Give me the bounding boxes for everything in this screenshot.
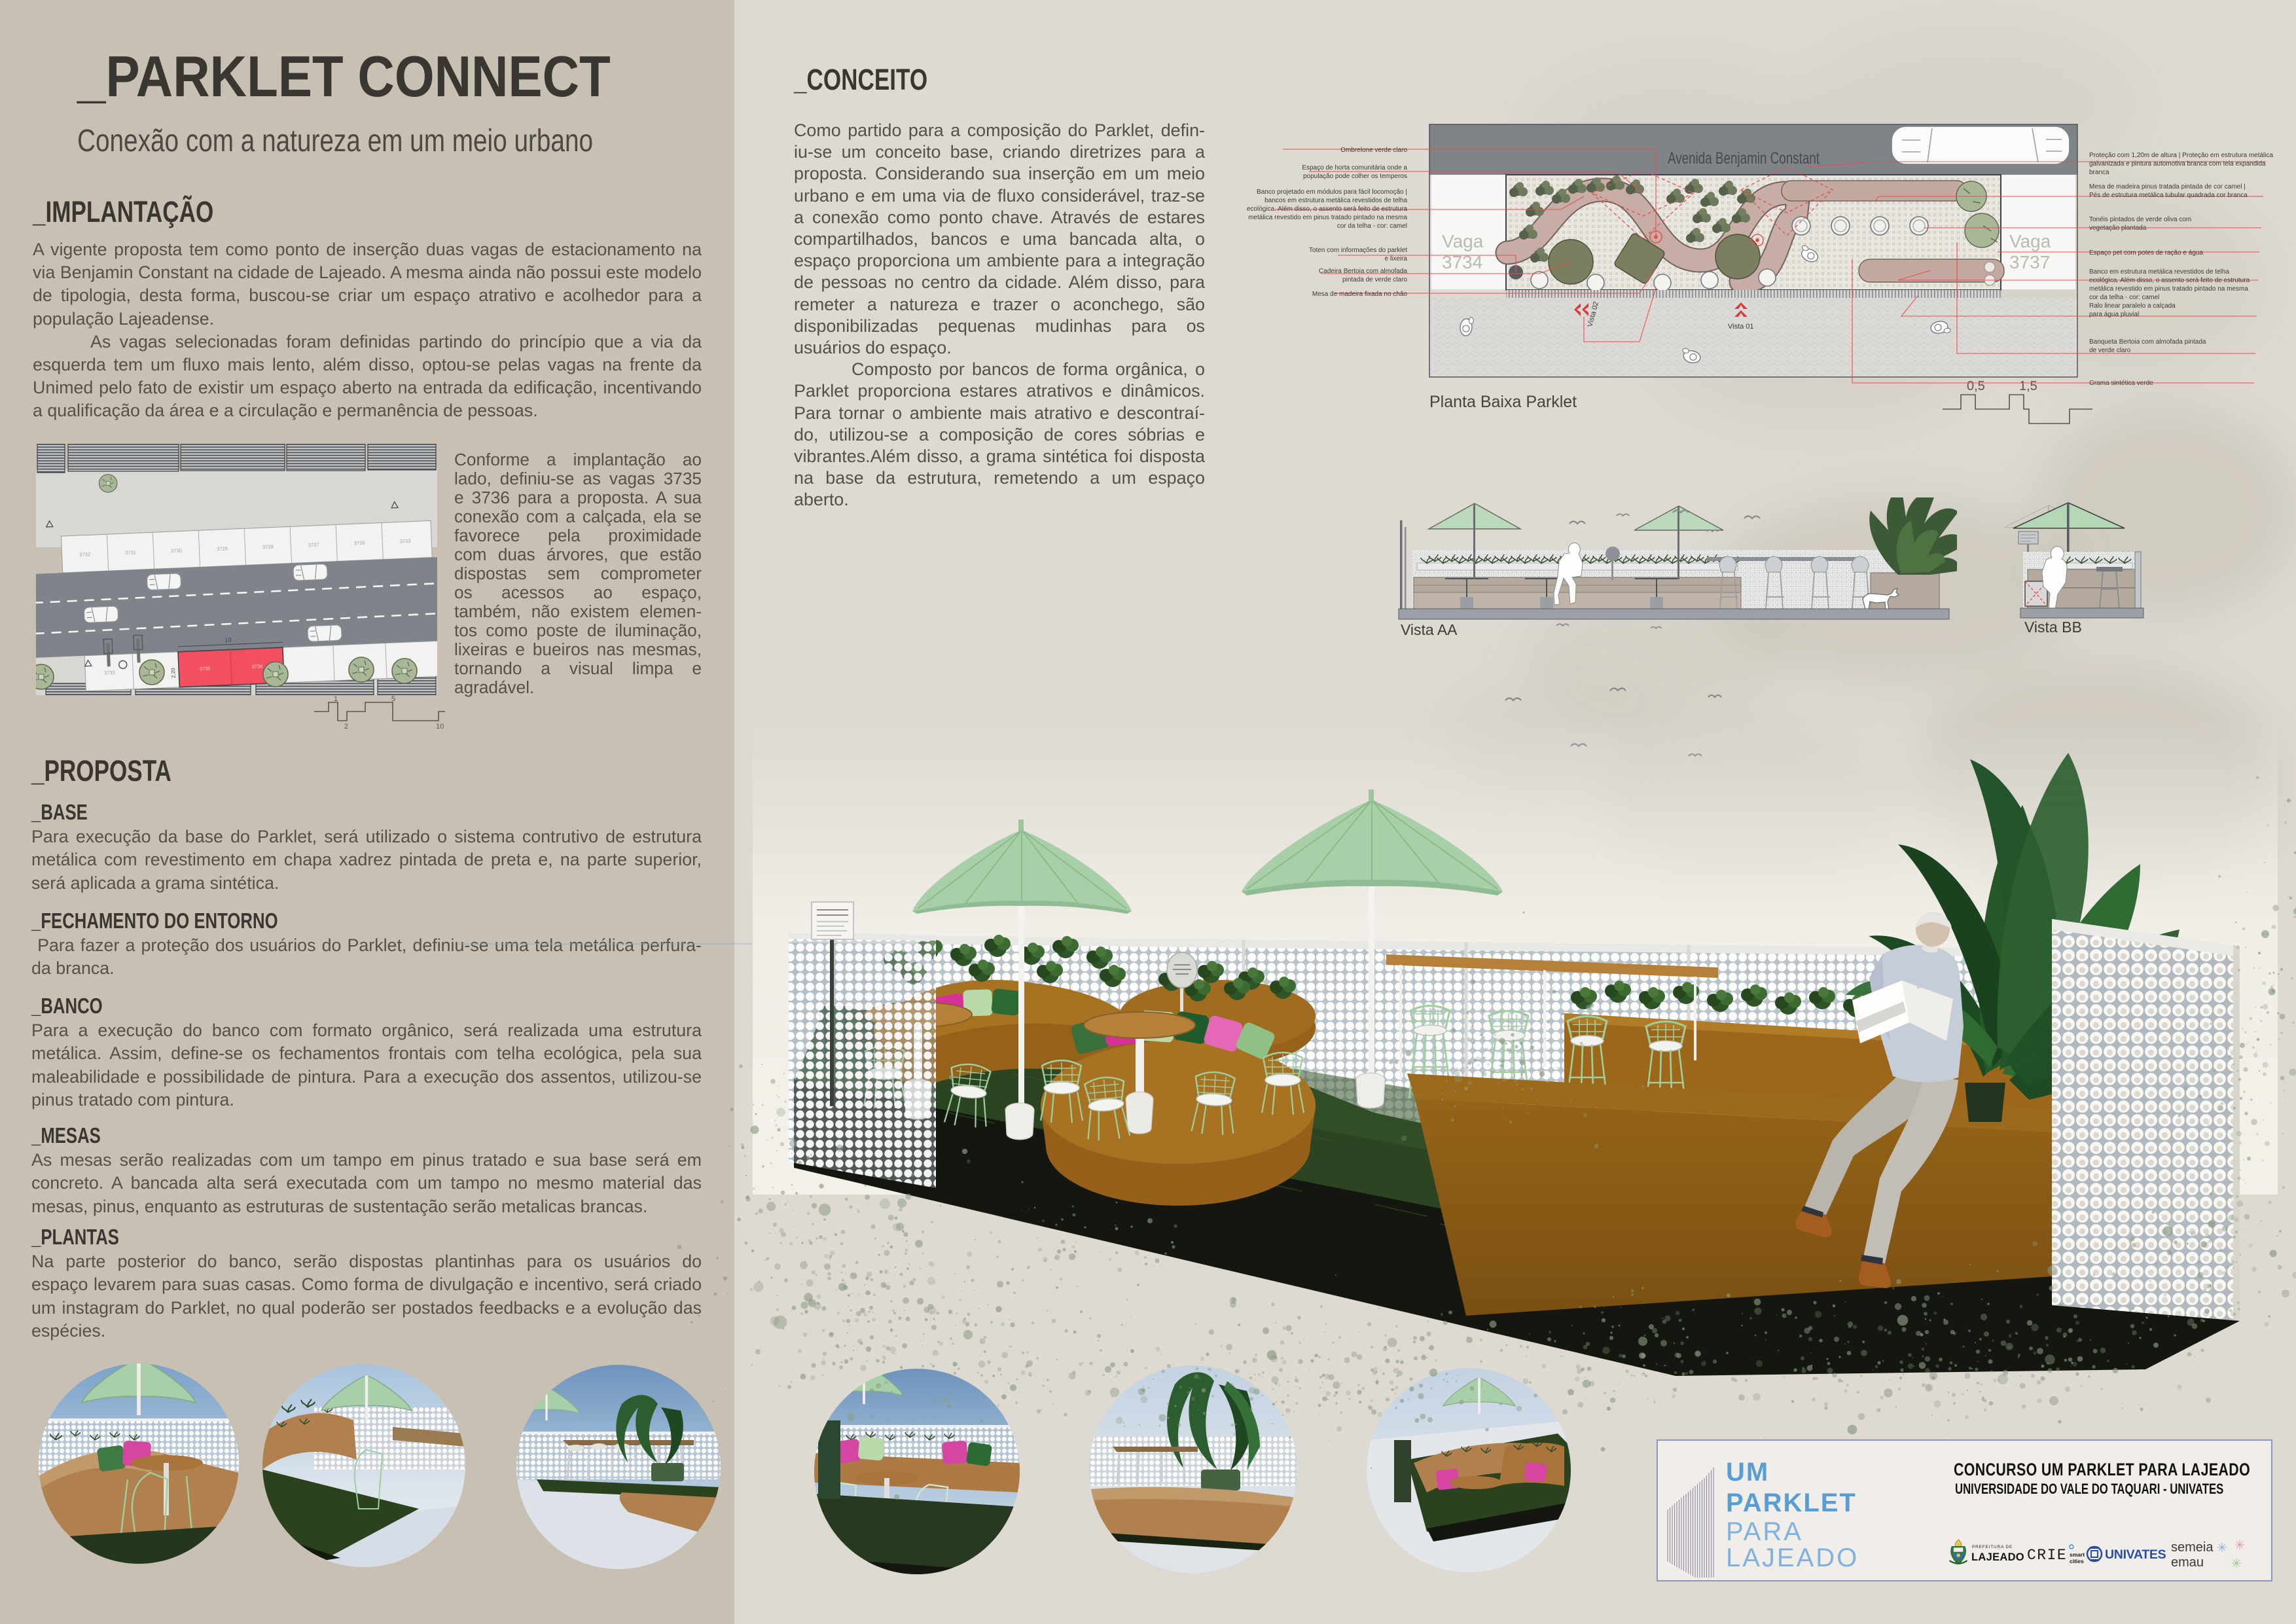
svg-text:cities: cities: [2070, 1558, 2084, 1564]
svg-text:emau: emau: [2171, 1555, 2204, 1570]
svg-text:semeia: semeia: [2171, 1540, 2214, 1555]
svg-text:PREFEITURA DE: PREFEITURA DE: [1972, 1545, 2013, 1549]
svg-text:LAJEADO: LAJEADO: [1971, 1551, 2024, 1563]
svg-text:UNIVATES: UNIVATES: [2105, 1547, 2166, 1562]
svg-text:smart: smart: [2070, 1551, 2085, 1558]
svg-text:CRIE: CRIE: [2027, 1547, 2067, 1564]
